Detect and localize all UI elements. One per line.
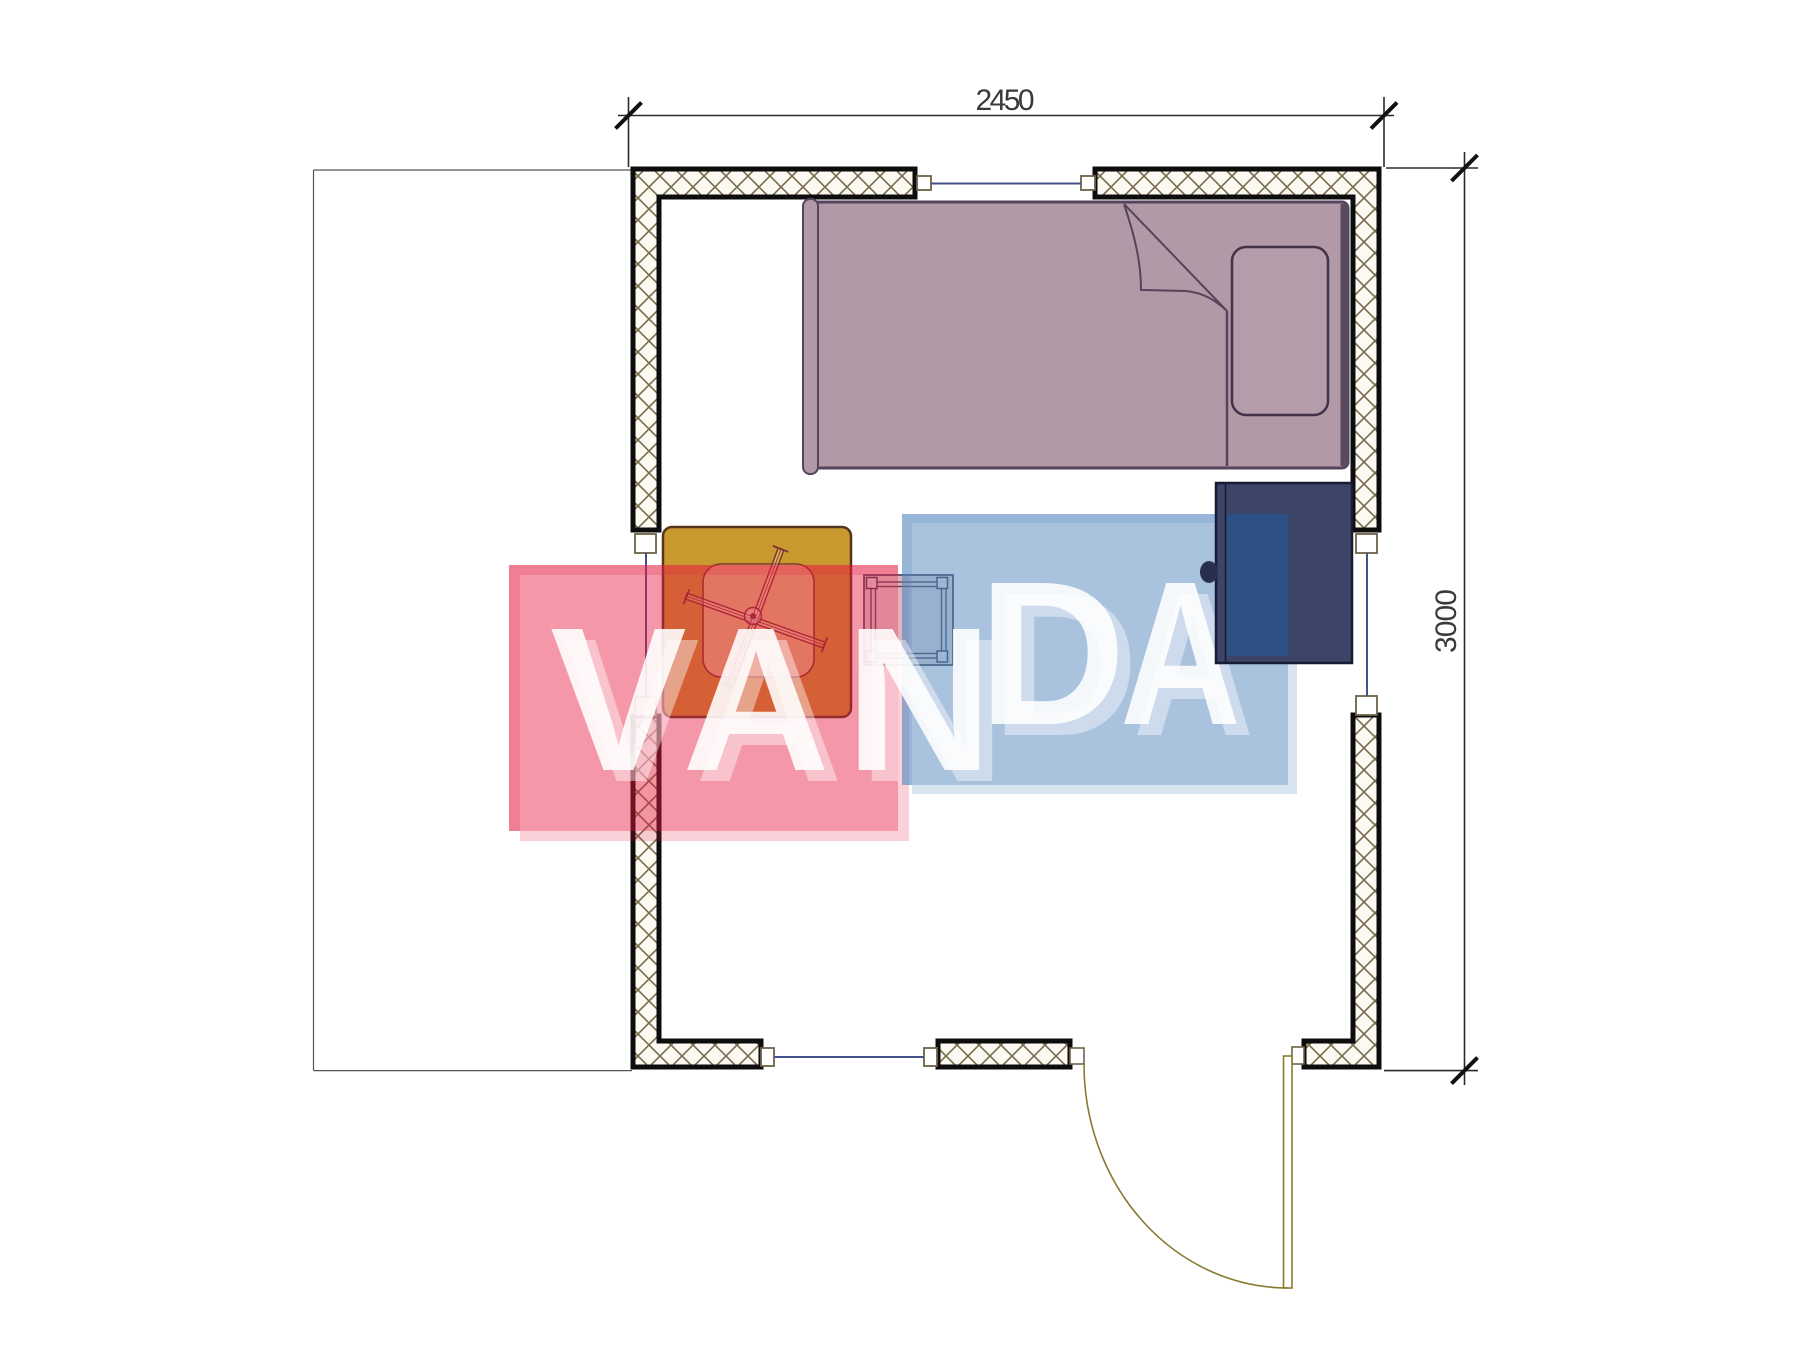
svg-text:3000: 3000 [1430, 589, 1463, 653]
svg-text:2450: 2450 [976, 84, 1035, 117]
svg-text:V: V [550, 585, 687, 814]
svg-text:D: D [978, 539, 1126, 768]
svg-text:A: A [682, 585, 830, 814]
svg-text:N: N [845, 585, 993, 814]
